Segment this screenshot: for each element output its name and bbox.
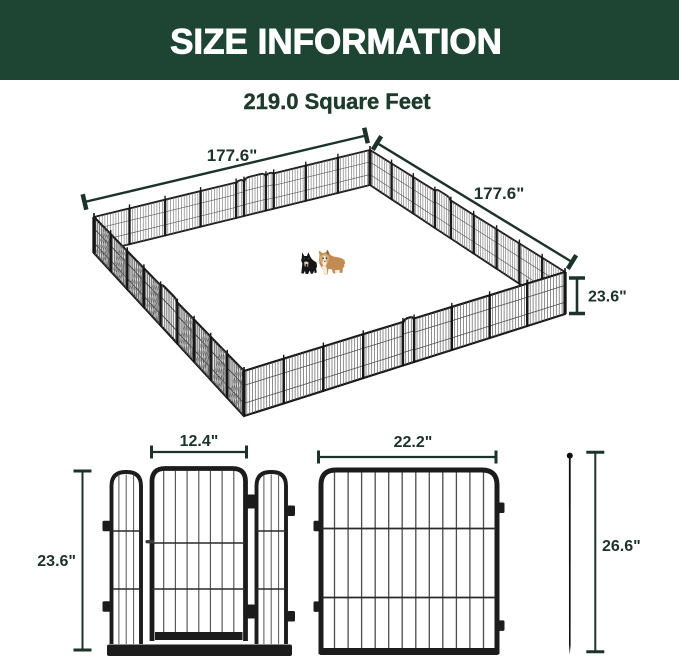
svg-text:26.6": 26.6" (602, 538, 641, 555)
svg-text:177.6": 177.6" (474, 184, 525, 203)
svg-text:23.6": 23.6" (588, 289, 627, 306)
svg-text:177.6": 177.6" (207, 146, 258, 165)
svg-text:219.0 Square Feet: 219.0 Square Feet (243, 89, 431, 114)
svg-text:22.2": 22.2" (394, 434, 433, 451)
svg-text:SIZE INFORMATION: SIZE INFORMATION (170, 23, 502, 62)
svg-text:23.6": 23.6" (37, 553, 76, 570)
svg-text:12.4": 12.4" (180, 433, 219, 450)
